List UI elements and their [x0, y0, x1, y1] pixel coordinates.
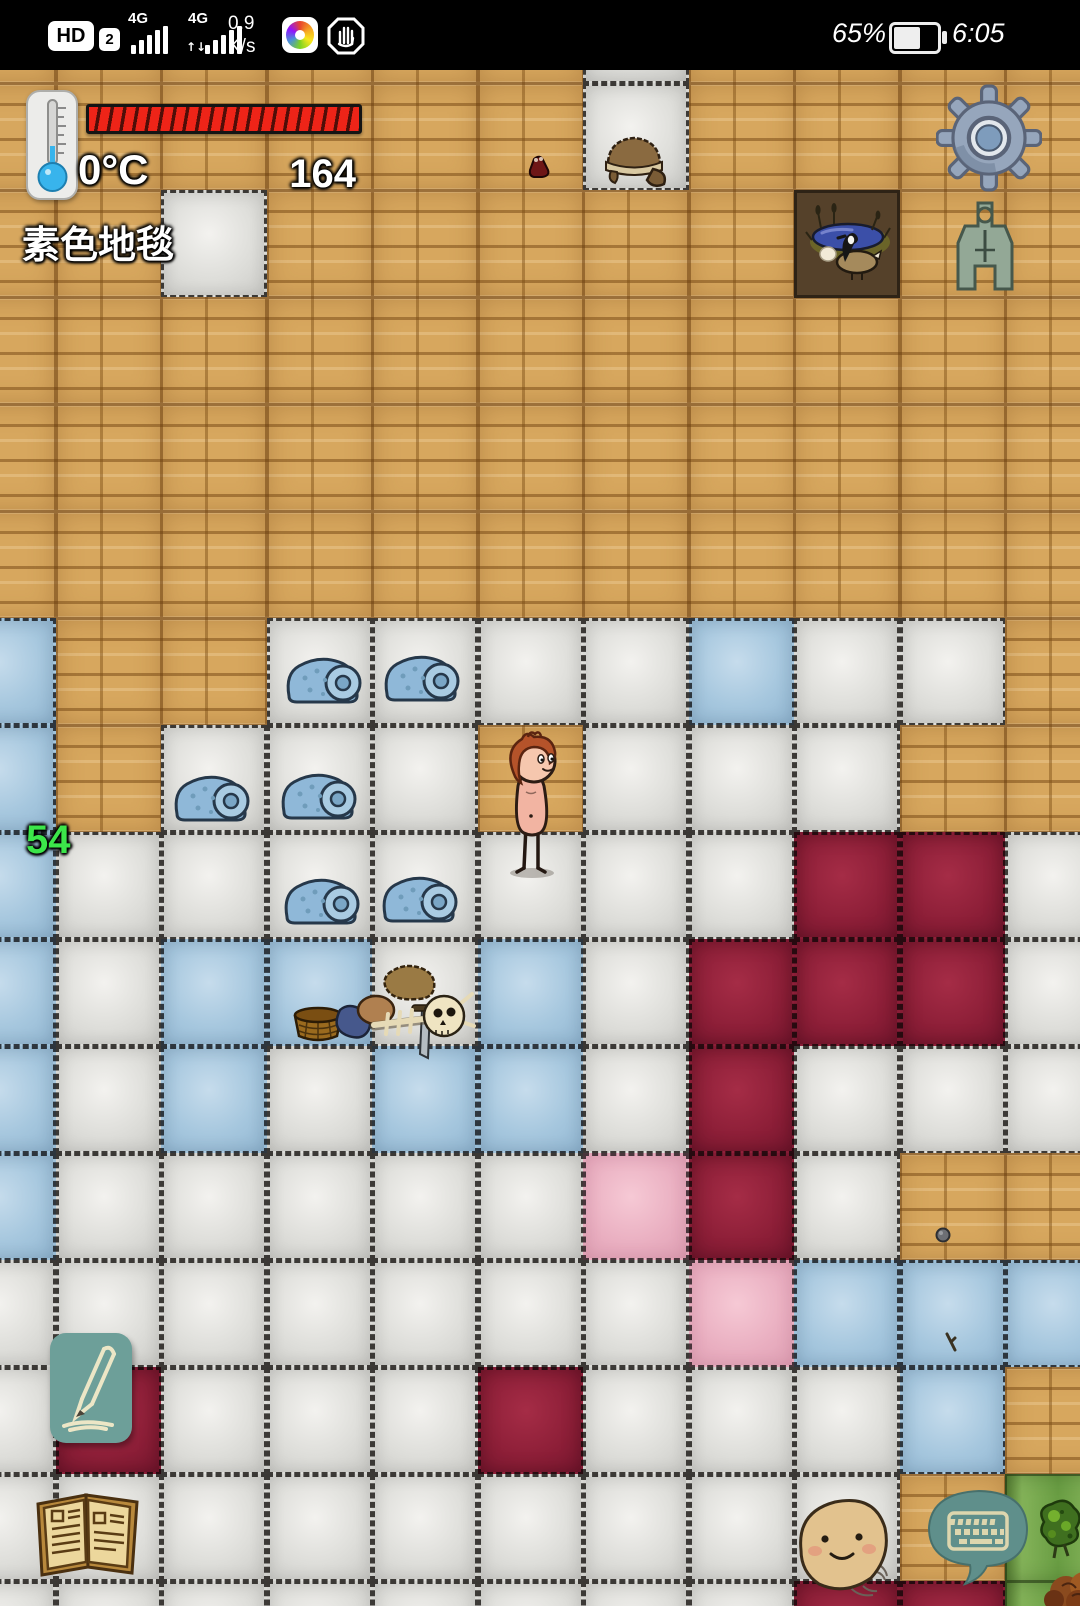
thermometer-icon [26, 90, 78, 200]
white-carpet-tile[interactable] [583, 725, 689, 833]
blue-carpet-tile[interactable] [689, 618, 795, 726]
tan-floor-tile[interactable] [56, 618, 162, 726]
white-carpet-tile[interactable] [56, 1153, 162, 1261]
countdown-number: 54 [26, 818, 71, 863]
white-carpet-tile[interactable] [478, 1474, 584, 1582]
tan-floor-tile[interactable] [900, 511, 1006, 619]
red-carpet-tile[interactable] [689, 1046, 795, 1154]
tan-floor-tile[interactable] [161, 297, 267, 405]
settings-button[interactable] [936, 84, 1042, 192]
blue-carpet-tile[interactable] [478, 1046, 584, 1154]
blue-carpet-tile[interactable] [161, 1046, 267, 1154]
tan-floor-tile[interactable] [583, 404, 689, 512]
white-carpet-tile[interactable] [372, 1153, 478, 1261]
tan-floor-tile[interactable] [689, 83, 795, 191]
speed-value: 0.9 [228, 12, 255, 35]
white-carpet-tile[interactable] [372, 1581, 478, 1606]
red-carpet-tile[interactable] [900, 939, 1006, 1047]
red-boot-art [525, 153, 553, 181]
fur-hat[interactable] [598, 128, 670, 188]
white-carpet-tile[interactable] [267, 1474, 373, 1582]
white-carpet-tile[interactable] [1005, 1046, 1080, 1154]
tan-floor-tile[interactable] [478, 190, 584, 298]
tan-floor-tile[interactable] [0, 404, 56, 512]
white-carpet-tile[interactable] [0, 1581, 56, 1606]
tan-floor-tile[interactable] [267, 297, 373, 405]
bedroll[interactable] [276, 766, 362, 826]
hd-icon: HD [48, 21, 94, 51]
blue-carpet-tile[interactable] [0, 1046, 56, 1154]
white-carpet-tile[interactable] [689, 1581, 795, 1606]
white-carpet-tile[interactable] [267, 1153, 373, 1261]
white-carpet-tile[interactable] [161, 1367, 267, 1475]
blue-carpet-tile[interactable] [0, 725, 56, 833]
stop-hand-icon [326, 16, 366, 56]
blue-carpet-tile[interactable] [900, 1367, 1006, 1475]
recipes-button[interactable] [28, 1488, 150, 1582]
tan-floor-tile[interactable] [56, 511, 162, 619]
tan-floor-tile[interactable] [267, 511, 373, 619]
white-carpet-tile[interactable] [56, 939, 162, 1047]
white-carpet-tile[interactable] [267, 1260, 373, 1368]
red-boot[interactable] [525, 153, 553, 181]
white-carpet-tile[interactable] [794, 1046, 900, 1154]
trade-button[interactable] [952, 200, 1018, 292]
tan-floor-tile[interactable] [372, 83, 478, 191]
status-bar: HD 2 4G 4G ↑↓ 0.9 K/s 65% 6:05 [0, 0, 1080, 70]
white-carpet-tile[interactable] [794, 725, 900, 833]
network-type-label-1: 4G [128, 10, 148, 27]
bedroll-art [379, 648, 465, 708]
pebble[interactable] [934, 1226, 952, 1244]
white-carpet-tile[interactable] [689, 725, 795, 833]
chat-button[interactable] [921, 1486, 1035, 1590]
clock-time: 6:05 [952, 18, 1005, 49]
twig-art [942, 1332, 960, 1354]
white-carpet-tile[interactable] [56, 832, 162, 940]
bedroll-art [276, 766, 362, 826]
hunger-bar [86, 104, 362, 134]
red-carpet-tile[interactable] [689, 939, 795, 1047]
white-carpet-tile[interactable] [267, 1367, 373, 1475]
white-carpet-tile[interactable] [56, 1046, 162, 1154]
tan-floor-tile[interactable] [478, 404, 584, 512]
tan-floor-tile[interactable] [372, 297, 478, 405]
blue-carpet-tile[interactable] [1005, 1260, 1080, 1368]
tan-floor-tile[interactable] [794, 404, 900, 512]
tan-floor-tile[interactable] [1005, 1367, 1080, 1475]
network-speed: 0.9 K/s [228, 12, 255, 58]
tan-floor-tile[interactable] [161, 618, 267, 726]
tan-floor-tile[interactable] [372, 190, 478, 298]
white-carpet-tile[interactable] [267, 1581, 373, 1606]
white-carpet-tile[interactable] [161, 1153, 267, 1261]
bedroll[interactable] [281, 650, 367, 710]
white-carpet-tile[interactable] [794, 1153, 900, 1261]
white-carpet-tile[interactable] [1005, 939, 1080, 1047]
goose-pond-art [794, 190, 900, 298]
gear-icon [936, 84, 1042, 192]
bedroll-art [281, 650, 367, 710]
white-carpet-tile[interactable] [689, 1474, 795, 1582]
tan-floor-tile[interactable] [1005, 618, 1080, 726]
white-carpet-tile[interactable] [794, 618, 900, 726]
white-carpet-tile[interactable] [161, 1581, 267, 1606]
face-avatar-icon [793, 1494, 895, 1598]
tan-floor-tile[interactable] [267, 404, 373, 512]
white-carpet-tile[interactable] [161, 832, 267, 940]
white-carpet-tile[interactable] [0, 1367, 56, 1475]
white-carpet-tile[interactable] [372, 1260, 478, 1368]
red-carpet-tile[interactable] [794, 832, 900, 940]
white-carpet-tile[interactable] [583, 1046, 689, 1154]
bedroll-art [169, 768, 255, 828]
keyboard-chat-icon [921, 1486, 1035, 1590]
tan-floor-tile[interactable] [794, 83, 900, 191]
skeleton-art [322, 946, 480, 1064]
bedroll[interactable] [279, 871, 365, 931]
emote-button[interactable] [793, 1494, 895, 1598]
signal-bars-icon [131, 26, 168, 54]
bedroll-art [279, 871, 365, 931]
tan-floor-tile[interactable] [689, 190, 795, 298]
pink-carpet-tile[interactable] [689, 1260, 795, 1368]
tan-floor-tile[interactable] [1005, 297, 1080, 405]
pebble-art [934, 1226, 952, 1244]
white-carpet-tile[interactable] [1005, 832, 1080, 940]
temperature-value: 0°C [78, 146, 149, 194]
bedroll-art [377, 869, 463, 929]
tan-floor-tile[interactable] [583, 190, 689, 298]
game-screen: 0°C 164 素色地毯 54 [0, 0, 1080, 1606]
tan-floor-tile[interactable] [0, 511, 56, 619]
tan-floor-tile[interactable] [900, 404, 1006, 512]
white-carpet-tile[interactable] [0, 1260, 56, 1368]
tan-floor-tile[interactable] [689, 297, 795, 405]
tan-floor-tile[interactable] [56, 404, 162, 512]
white-carpet-tile[interactable] [372, 1474, 478, 1582]
blue-carpet-tile[interactable] [0, 1153, 56, 1261]
network-type-label-2: 4G [188, 10, 208, 27]
tan-floor-tile[interactable] [267, 190, 373, 298]
white-carpet-tile[interactable] [56, 1581, 162, 1606]
white-carpet-tile[interactable] [583, 832, 689, 940]
white-carpet-tile[interactable] [478, 618, 584, 726]
tan-floor-tile[interactable] [689, 404, 795, 512]
white-carpet-tile[interactable] [372, 1367, 478, 1475]
tan-floor-tile[interactable] [900, 1153, 1006, 1261]
sim2-icon: 2 [99, 28, 120, 51]
white-carpet-tile[interactable] [583, 1367, 689, 1475]
blue-carpet-tile[interactable] [161, 939, 267, 1047]
white-carpet-tile[interactable] [372, 725, 478, 833]
white-carpet-tile[interactable] [161, 190, 267, 298]
tan-floor-tile[interactable] [689, 511, 795, 619]
updown-arrows-icon: ↑↓ [186, 40, 206, 54]
tan-floor-tile[interactable] [794, 297, 900, 405]
white-carpet-tile[interactable] [583, 1474, 689, 1582]
blue-carpet-tile[interactable] [478, 939, 584, 1047]
tan-floor-tile[interactable] [478, 511, 584, 619]
white-carpet-tile[interactable] [689, 832, 795, 940]
tan-floor-tile[interactable] [372, 511, 478, 619]
tan-floor-tile[interactable] [161, 511, 267, 619]
bedroll[interactable] [169, 768, 255, 828]
goose-pond[interactable] [794, 190, 900, 298]
bush[interactable] [1034, 1496, 1080, 1560]
red-carpet-tile[interactable] [794, 939, 900, 1047]
white-carpet-tile[interactable] [689, 1367, 795, 1475]
tan-floor-tile[interactable] [1005, 511, 1080, 619]
white-carpet-tile[interactable] [900, 1046, 1006, 1154]
white-carpet-tile[interactable] [161, 1474, 267, 1582]
tan-floor-tile[interactable] [1005, 725, 1080, 833]
white-carpet-tile[interactable] [478, 1153, 584, 1261]
pink-carpet-tile[interactable] [583, 1153, 689, 1261]
tan-floor-tile[interactable] [1005, 404, 1080, 512]
white-carpet-tile[interactable] [478, 1260, 584, 1368]
white-carpet-tile[interactable] [161, 1260, 267, 1368]
bedroll[interactable] [377, 869, 463, 929]
speed-unit: K/s [228, 35, 255, 58]
white-carpet-tile[interactable] [583, 939, 689, 1047]
food-count: 164 [246, 152, 356, 197]
tan-floor-tile[interactable] [478, 297, 584, 405]
fur-hat-art [598, 128, 670, 188]
tan-floor-tile[interactable] [794, 511, 900, 619]
player-character-art [490, 728, 576, 880]
battery-percent: 65% [832, 18, 886, 49]
white-carpet-tile[interactable] [583, 1581, 689, 1606]
white-carpet-tile[interactable] [478, 1581, 584, 1606]
tan-floor-tile[interactable] [900, 725, 1006, 833]
photos-app-icon [282, 17, 318, 53]
red-carpet-tile[interactable] [478, 1367, 584, 1475]
character[interactable] [490, 728, 576, 880]
white-carpet-tile[interactable] [794, 1367, 900, 1475]
blue-carpet-tile[interactable] [0, 618, 56, 726]
tan-floor-tile[interactable] [56, 297, 162, 405]
white-carpet-tile[interactable] [583, 618, 689, 726]
tile-name-label: 素色地毯 [22, 214, 174, 269]
bedroll[interactable] [379, 648, 465, 708]
tan-floor-tile[interactable] [0, 297, 56, 405]
tan-floor-tile[interactable] [1005, 1153, 1080, 1261]
tan-floor-tile[interactable] [161, 404, 267, 512]
red-carpet-tile[interactable] [689, 1153, 795, 1261]
book-icon [28, 1488, 150, 1582]
spade-coin-icon [952, 200, 1018, 292]
tan-floor-tile[interactable] [583, 297, 689, 405]
blue-carpet-tile[interactable] [0, 939, 56, 1047]
battery-icon [889, 22, 941, 54]
white-carpet-tile[interactable] [583, 1260, 689, 1368]
notes-button[interactable] [50, 1333, 132, 1443]
pencil-icon [50, 1333, 132, 1443]
white-carpet-tile[interactable] [900, 618, 1006, 726]
twig[interactable] [942, 1332, 960, 1354]
tan-floor-tile[interactable] [372, 404, 478, 512]
tan-floor-tile[interactable] [56, 725, 162, 833]
bush-art [1034, 1496, 1080, 1560]
red-carpet-tile[interactable] [900, 832, 1006, 940]
skeleton[interactable] [322, 946, 480, 1064]
tan-floor-tile[interactable] [900, 297, 1006, 405]
tan-floor-tile[interactable] [583, 511, 689, 619]
blue-carpet-tile[interactable] [794, 1260, 900, 1368]
